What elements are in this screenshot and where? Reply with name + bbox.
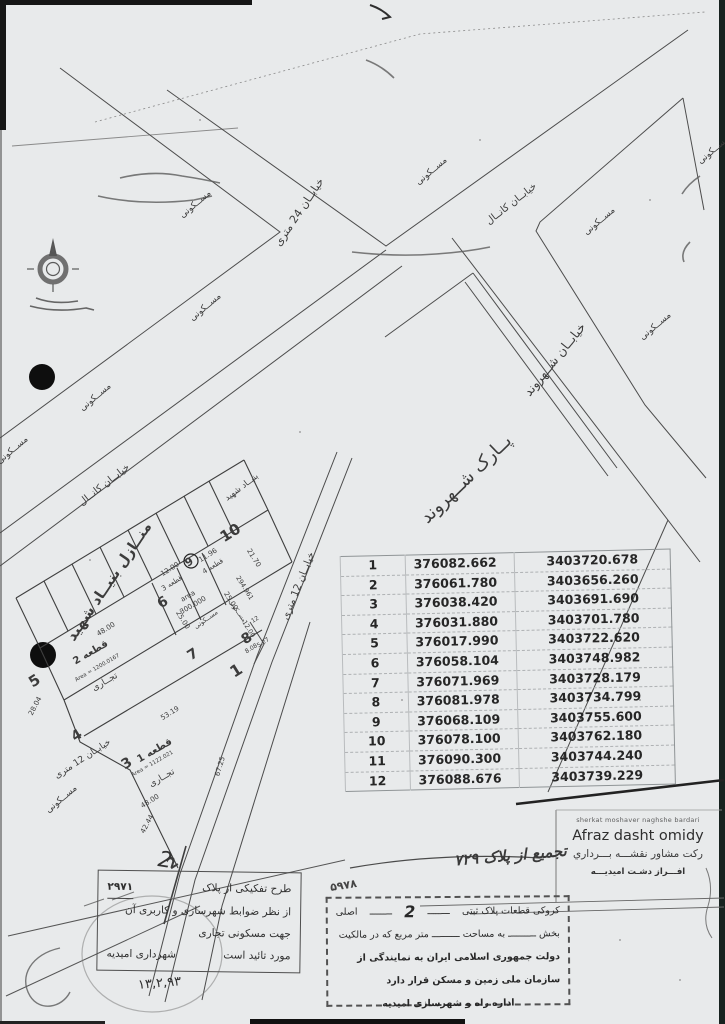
plot5-area: 294.961 — [234, 574, 255, 601]
approval-line-1-text: طرح تفکیکی از پلاک — [202, 877, 292, 901]
point-id: 10 — [344, 731, 409, 752]
easting: 376082.662 — [405, 553, 515, 575]
dim: 42.44 — [139, 813, 156, 835]
plot1-use: تجــاری — [147, 767, 176, 790]
point-6: 6 — [155, 593, 172, 612]
approval-confirmed-text: مورد تائید است — [223, 944, 291, 967]
kroki-dash: ــــــــ — [370, 900, 392, 923]
easting: 376088.676 — [410, 768, 520, 790]
easting: 376058.104 — [407, 651, 517, 673]
surveyor-stamp-name-fa: افـــراز دشـت امیدیـــه — [552, 867, 724, 877]
approval-line-3: جهت مسکونی تجاری — [107, 921, 291, 946]
kroki-description-box: کروکی قطعات پلاک ثبتی ــــــــ 2 ـــــــ… — [326, 895, 571, 1007]
dim: 21.70 — [245, 547, 262, 568]
zone-maskooni: مســکونی — [78, 381, 113, 413]
surveyor-stamp-name-en: Afraz dasht omidy — [552, 828, 724, 844]
compass-rose — [27, 238, 94, 310]
street-24m-label: خیابــان 24 متری — [272, 176, 327, 249]
point-7: 7 — [185, 645, 202, 664]
kroki-dash: ــــــــ — [427, 900, 449, 923]
easting: 376090.300 — [409, 748, 519, 770]
kroki-plot-number: 2 — [404, 900, 415, 923]
dim: 12 — [250, 615, 260, 625]
zone-maskooni: مســکونی — [44, 783, 79, 815]
dim: 67.25 — [213, 756, 227, 778]
easting: 376017.990 — [407, 631, 517, 653]
plot2-use: تجــاری — [90, 671, 119, 694]
dim: 25.00 — [174, 609, 191, 630]
point-10: 10 — [217, 520, 244, 546]
point-id: 4 — [341, 614, 406, 635]
easting: 376068.109 — [408, 709, 518, 731]
point-id: 11 — [345, 751, 410, 772]
zone-maskooni: مســکونی — [582, 205, 617, 237]
zone-maskooni: مســکونی — [638, 310, 673, 342]
municipality-name: شهرداری امیدیه — [106, 943, 176, 966]
coordinate-table: 1376082.6623403720.678 2376061.780340365… — [340, 549, 676, 793]
point-id: 1 — [340, 555, 405, 576]
hole-punch — [29, 364, 55, 390]
street-kanal-label-2: خیابــان کانــال — [77, 462, 132, 508]
easting: 376078.100 — [409, 729, 519, 751]
zone-maskooni: مســکونی — [414, 155, 449, 187]
approval-line-2: از نظر ضوابط شهرسازی و کاربری آن — [107, 899, 291, 924]
point-id: 5 — [342, 633, 407, 654]
dim: 5.27 — [256, 636, 271, 649]
point-4: 4 — [69, 726, 86, 745]
surveyor-stamp-line-fa: رکت مشاور نقشـــه بـــرداري — [552, 848, 724, 860]
park-shahrvand-label: پــارک شــهروند — [416, 430, 516, 527]
point-id: 12 — [345, 771, 410, 792]
street-shahrvand-label: خیابــان شــهروند — [520, 320, 589, 400]
bonyad-shahid-label: بنیــاد شهید — [223, 471, 261, 503]
kroki-line-2-text: بخش ــــــــــ به مساحت ــــــــــ متر م… — [339, 922, 560, 947]
kroki-line-2: بخش ــــــــــ به مساحت ــــــــــ متر م… — [336, 922, 560, 947]
point-1: 1 — [226, 659, 246, 681]
point-id: 7 — [343, 673, 408, 694]
zone-maskooni: مســکونی — [178, 188, 213, 220]
approval-line-2-text: از نظر ضوابط شهرسازی و کاربری آن — [125, 899, 291, 923]
point-id: 8 — [343, 692, 408, 713]
plot-number-handwritten: ۲۹۷۱ — [107, 876, 133, 899]
approval-line-4: مورد تائید است شهرداری امیدیه — [106, 943, 290, 968]
surveyor-stamp-line-en-small: sherkat moshaver naghshe bardari — [552, 816, 724, 824]
point-3: 3 — [119, 754, 136, 773]
kroki-line-3: دولت جمهوری اسلامی ایران به نمایندگی از … — [336, 945, 560, 993]
approval-line-1: طرح تفکیکی از پلاک ۲۹۷۱ — [107, 876, 291, 902]
northing: 3403739.229 — [519, 765, 675, 788]
easting: 376081.978 — [408, 690, 518, 712]
dim: 48.00 — [95, 621, 116, 638]
point-id: 2 — [341, 575, 406, 596]
street-kanal-label: خیابــان کانــال — [484, 181, 539, 227]
kroki-line-4: اداره راه و شهرسازی امیدیه — [336, 991, 560, 1016]
easting: 376038.420 — [406, 592, 516, 614]
boundary-lines — [12, 5, 705, 146]
street-12m-label: خیابــان 12 متری — [280, 551, 317, 622]
point-5: 5 — [25, 670, 43, 691]
point-id: 6 — [342, 653, 407, 674]
dim: 28.04 — [27, 695, 44, 717]
kroki-line-1-text: کروکی قطعات پلاک ثبتی — [462, 899, 560, 923]
easting: 376061.780 — [405, 572, 515, 594]
municipality-approval-stamp: طرح تفکیکی از پلاک ۲۹۷۱ از نظر ضوابط شهر… — [96, 870, 301, 974]
kroki-line-1-suffix: اصلی — [336, 901, 358, 924]
zone-maskooni: مســکونی — [0, 434, 31, 466]
point-numbers: 10 9 6 7 8 1 5 4 3 2 — [25, 520, 255, 874]
surveyor-stamp: sherkat moshaver naghshe bardari Afraz d… — [552, 808, 724, 877]
point-id: 3 — [341, 594, 406, 615]
kroki-line-1: کروکی قطعات پلاک ثبتی ــــــــ 2 ـــــــ… — [336, 899, 560, 924]
easting: 376071.969 — [408, 670, 518, 692]
point-id: 9 — [344, 712, 409, 733]
approval-line-3-text: جهت مسکونی تجاری — [198, 922, 291, 945]
dim: 53.19 — [159, 705, 180, 722]
easting: 376031.880 — [406, 611, 516, 633]
